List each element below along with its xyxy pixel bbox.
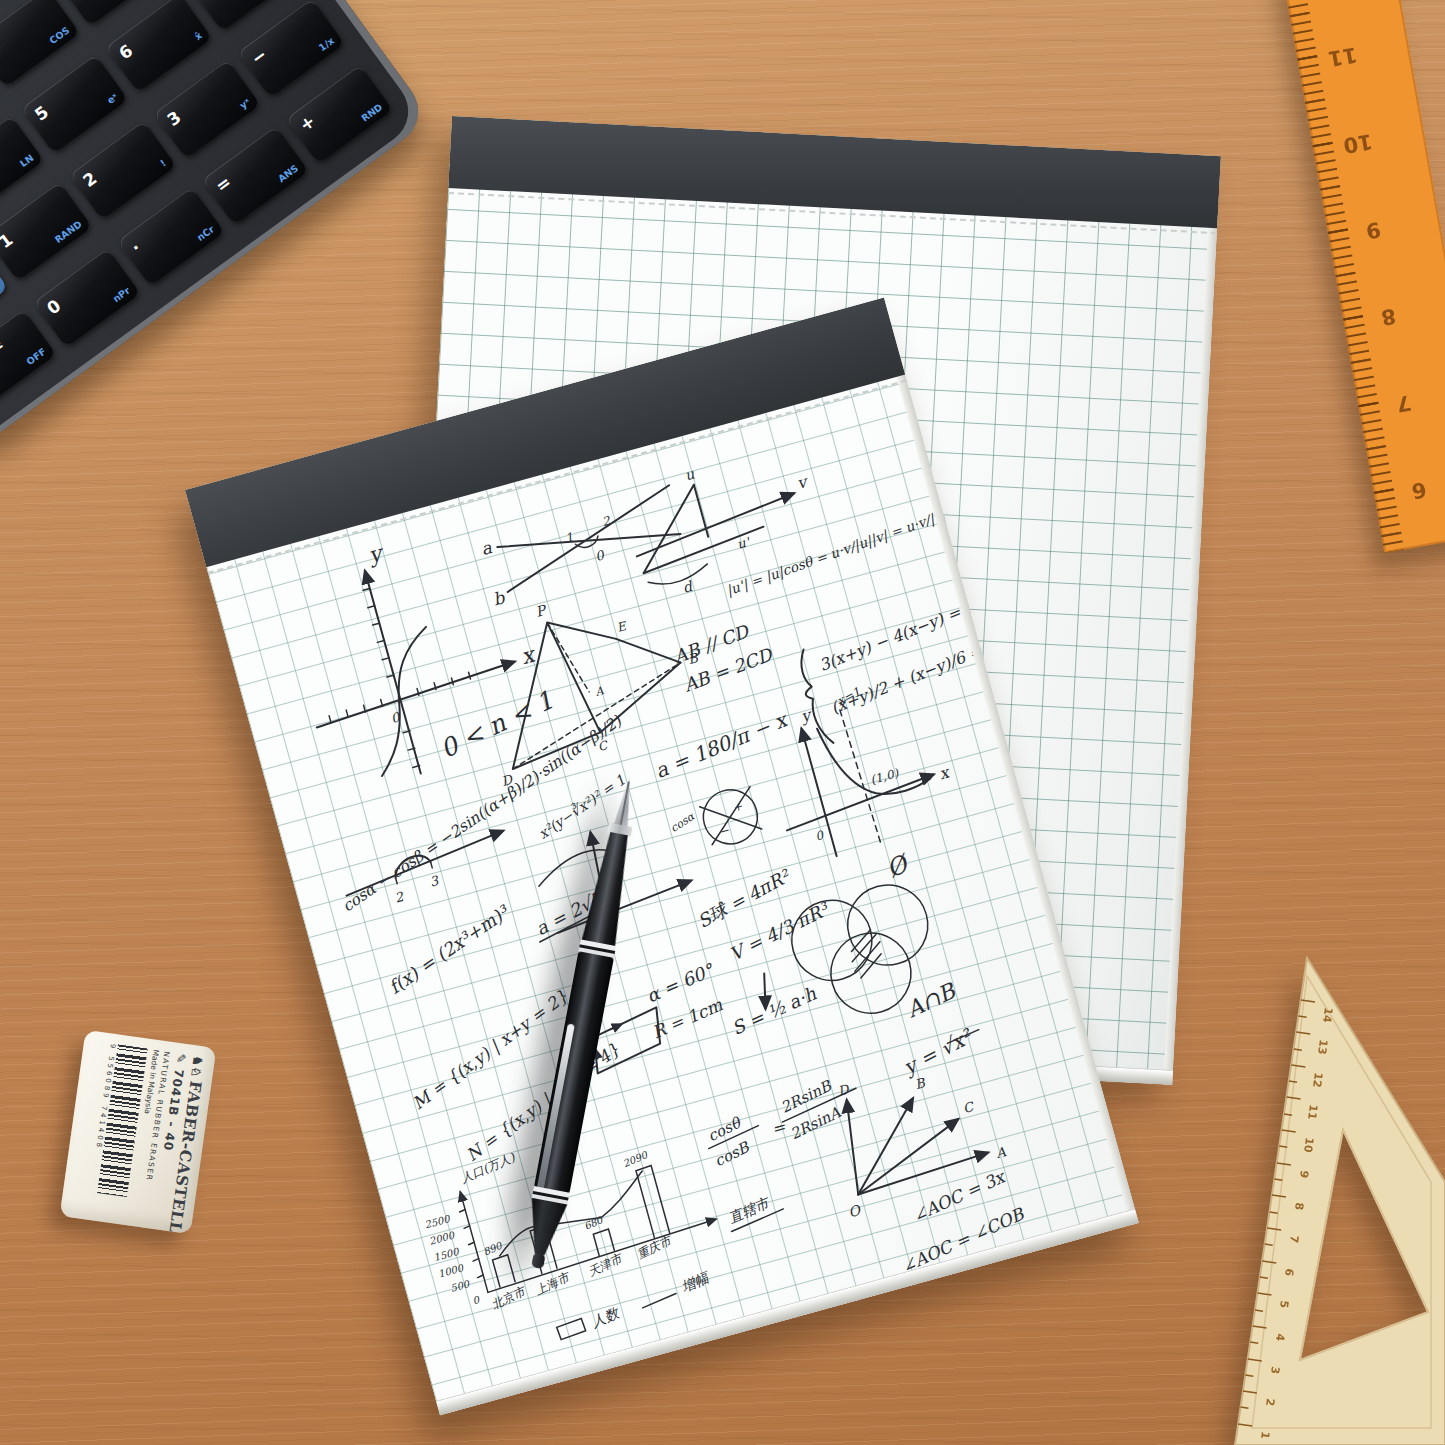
set-square-number: 3 — [1268, 1366, 1282, 1375]
svg-text:E: E — [615, 619, 628, 635]
set-square-number: 1 — [1258, 1431, 1272, 1440]
formula-triangle-area: S = ½ a·h — [729, 983, 820, 1040]
formula-a-intersect-b: A∩B — [902, 978, 961, 1023]
svg-text:−: − — [717, 823, 730, 839]
calc-key-6: 6x̂ — [105, 0, 212, 93]
svg-text:C: C — [961, 1099, 977, 1117]
orange-ruler: 12 11 10 9 8 7 6 — [1282, 0, 1445, 553]
calc-key-0: 0nPr — [33, 248, 140, 347]
sketch-angle-circle: cosα + − — [663, 784, 763, 860]
chart-category: 北京市 — [489, 1283, 529, 1312]
calc-key-decimal: ·nCr — [117, 187, 224, 286]
chart-bar-value: 890 — [482, 1239, 505, 1257]
set-square-number: 10 — [1301, 1137, 1316, 1154]
calc-key-minus: −1/x — [237, 0, 344, 98]
svg-text:A: A — [593, 684, 606, 699]
ruler-tick-marks — [1282, 0, 1404, 553]
svg-text:B: B — [913, 1075, 928, 1092]
set-square-number: 8 — [1292, 1202, 1306, 1211]
svg-text:0: 0 — [389, 709, 403, 726]
svg-text:v: v — [795, 471, 812, 493]
svg-text:(1,0): (1,0) — [869, 766, 901, 787]
set-square-number: 12 — [1310, 1072, 1325, 1089]
desk-scene: y x 0 a b 1 2 0 — [0, 0, 1445, 1445]
ruler-number: 7 — [1387, 389, 1421, 418]
set-square-number: 5 — [1277, 1300, 1291, 1309]
svg-text:cosα: cosα — [668, 809, 698, 835]
svg-text:y: y — [365, 540, 388, 569]
sketch-curve-graph: y x 0 (1,0) x=1 — [755, 667, 964, 867]
svg-text:a: a — [479, 537, 495, 559]
svg-text:2: 2 — [601, 513, 613, 529]
formula-empty-set: Ø — [882, 849, 915, 884]
svg-text:y = √x²: y = √x² — [899, 1023, 978, 1080]
svg-text:3: 3 — [428, 873, 442, 890]
financial-calculator: NxP/YR I/YRICnv PVBeg PMTP/YR FVEnd Amor… — [0, 0, 432, 448]
pen-end-button — [531, 1252, 546, 1269]
ruler-number: 11 — [1326, 42, 1360, 71]
ruler-number: 6 — [1402, 476, 1436, 505]
calc-key-equals: =ANS — [201, 126, 308, 225]
eraser: ♞♘FABER-CASTELL ✎ 7041B - 40 NATURAL RUB… — [60, 1030, 217, 1235]
svg-text:A: A — [993, 1144, 1008, 1161]
ruler-number: 10 — [1341, 129, 1375, 158]
set-square-number: 9 — [1297, 1170, 1311, 1179]
ruler-number: 8 — [1372, 302, 1406, 331]
chart-ytick: 2000 — [428, 1229, 457, 1247]
calc-key-3: 3yˣ — [153, 60, 260, 159]
eraser-print: ♞♘FABER-CASTELL ✎ 7041B - 40 NATURAL RUB… — [60, 1030, 217, 1235]
chart-bar-value: 2090 — [621, 1149, 650, 1170]
calc-key-5: 5eˣ — [21, 54, 128, 153]
set-square-number: 11 — [1305, 1104, 1320, 1121]
formula-fx: f(x) = (2x³+m)³ — [385, 900, 514, 998]
svg-text:0: 0 — [594, 547, 608, 564]
knights-logo-icon: ♞♘ — [188, 1055, 205, 1079]
set-square: 14 13 12 11 10 9 8 7 6 5 4 3 2 1 — [1180, 950, 1445, 1445]
calc-key-2: 2! — [69, 121, 176, 220]
svg-text:u': u' — [735, 534, 752, 552]
svg-text:0: 0 — [814, 828, 826, 844]
calc-key-1: 1RAND — [0, 182, 92, 281]
svg-text:b: b — [491, 587, 508, 609]
svg-text:P: P — [534, 601, 550, 620]
chart-legend-line: 增幅 — [679, 1268, 713, 1295]
set-square-number: 14 — [1320, 1007, 1335, 1024]
calc-key-plus: +RND — [286, 65, 393, 164]
set-square-number: 7 — [1287, 1235, 1301, 1244]
chart-ytick: 1500 — [432, 1245, 461, 1263]
chart-ytick: 2500 — [423, 1213, 452, 1231]
svg-text:d: d — [681, 578, 696, 596]
chart-category: 上海市 — [533, 1269, 573, 1298]
svg-text:2: 2 — [393, 889, 406, 906]
svg-text:|u'| = |u|cosθ = u·v/|u||v| =: |u'| = |u|cosθ = u·v/|u||v| = u·v/|v| — [724, 506, 949, 599]
svg-text:x: x — [937, 762, 953, 783]
chart-legend-bar: 人数 — [588, 1304, 623, 1331]
formula-sqrt-group: y = √x² — [894, 1021, 986, 1082]
chart-ytick: 500 — [449, 1278, 472, 1294]
ruler-number: 9 — [1356, 216, 1390, 245]
svg-text:x: x — [518, 641, 539, 669]
svg-text:u: u — [683, 465, 697, 483]
svg-text:O: O — [847, 1202, 864, 1221]
chart-ytick: 1000 — [437, 1262, 466, 1280]
formula-alpha-eq: a = 180/π − x — [651, 707, 792, 784]
svg-text:+: + — [731, 799, 744, 814]
calc-key-once: ON/CEOFF — [0, 309, 56, 408]
chart-xlabel: 直辖市 — [726, 1194, 773, 1226]
set-square-number: 13 — [1315, 1039, 1330, 1056]
set-square-number: 2 — [1263, 1398, 1277, 1407]
pencil-icon: ✎ — [173, 1052, 188, 1065]
chart-ytick: 0 — [471, 1294, 482, 1307]
